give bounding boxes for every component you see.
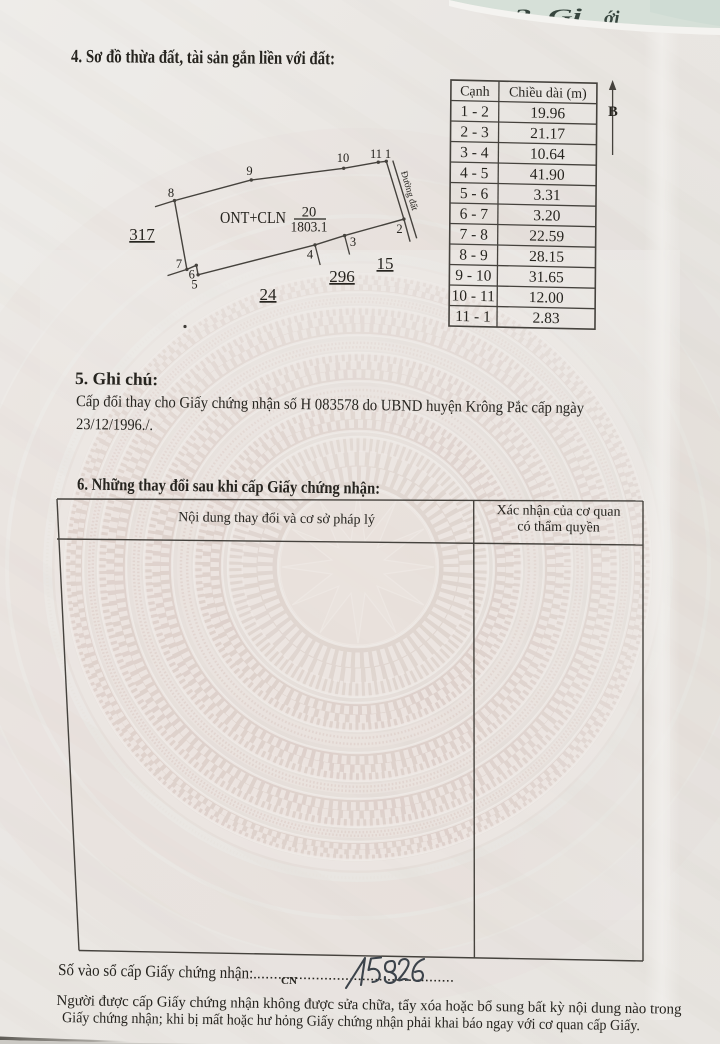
- svg-text:Nội dung thay đổi và cơ sở phá: Nội dung thay đổi và cơ sở pháp lý: [178, 510, 375, 528]
- svg-text:20: 20: [302, 205, 317, 221]
- svg-text:317: 317: [129, 225, 155, 244]
- svg-text:5 - 6: 5 - 6: [460, 185, 489, 203]
- svg-text:3.20: 3.20: [533, 207, 561, 225]
- svg-text:2 - 3: 2 - 3: [460, 124, 489, 142]
- svg-text:7: 7: [176, 257, 182, 271]
- svg-text:2: 2: [396, 222, 402, 236]
- svg-text:10: 10: [337, 151, 350, 165]
- svg-text:11 - 1: 11 - 1: [455, 308, 491, 326]
- svg-text:11: 11: [370, 147, 382, 161]
- svg-text:2.83: 2.83: [532, 310, 560, 328]
- svg-text:Cạnh: Cạnh: [460, 84, 490, 100]
- svg-text:15: 15: [377, 254, 394, 273]
- svg-text:4. Sơ đồ thừa đất, tài sản gắn: 4. Sơ đồ thừa đất, tài sản gắn liền với …: [71, 47, 335, 69]
- svg-text:7 - 8: 7 - 8: [459, 226, 488, 244]
- svg-text:8 - 9: 8 - 9: [459, 247, 488, 265]
- svg-text:Số vào sổ cấp Giấy chứng nhận:: Số vào sổ cấp Giấy chứng nhận:.: [58, 960, 257, 982]
- svg-text:41.90: 41.90: [530, 166, 565, 184]
- svg-text:1: 1: [385, 147, 391, 161]
- svg-text:19.96: 19.96: [530, 105, 565, 123]
- svg-text:22.59: 22.59: [529, 228, 564, 246]
- svg-text:1803.1: 1803.1: [291, 220, 328, 236]
- svg-text:5. Ghi chú:: 5. Ghi chú:: [75, 368, 158, 389]
- svg-text:8: 8: [168, 186, 174, 200]
- svg-text:3: 3: [350, 235, 356, 249]
- svg-text:9: 9: [246, 164, 252, 178]
- svg-text:có thẩm quyền: có thẩm quyền: [517, 519, 600, 535]
- svg-text:3.31: 3.31: [533, 187, 560, 205]
- svg-text:Chiều dài (m): Chiều dài (m): [509, 85, 587, 102]
- svg-text:10 - 11: 10 - 11: [451, 287, 494, 305]
- svg-text:9 - 10: 9 - 10: [455, 267, 492, 285]
- svg-text:21.17: 21.17: [530, 125, 565, 143]
- svg-text:B: B: [608, 104, 618, 120]
- svg-text:5: 5: [191, 278, 197, 292]
- svg-text:23/12/1996./.: 23/12/1996./.: [76, 416, 153, 434]
- svg-text:6 - 7: 6 - 7: [460, 206, 489, 224]
- svg-text:24: 24: [260, 285, 278, 304]
- svg-text:CN: CN: [281, 975, 297, 987]
- svg-text:1 - 2: 1 - 2: [460, 103, 489, 121]
- svg-text:Xác nhận của cơ quan: Xác nhận của cơ quan: [496, 503, 620, 520]
- svg-text:296: 296: [329, 267, 355, 286]
- svg-text:10.64: 10.64: [530, 146, 565, 164]
- svg-text:3 - 4: 3 - 4: [460, 144, 489, 162]
- svg-text:31.65: 31.65: [529, 269, 564, 287]
- svg-text:28.15: 28.15: [529, 248, 564, 266]
- svg-text:ONT+CLN: ONT+CLN: [220, 208, 286, 227]
- svg-text:12.00: 12.00: [529, 289, 564, 307]
- svg-text:4 - 5: 4 - 5: [460, 165, 489, 183]
- svg-text:4: 4: [307, 248, 314, 262]
